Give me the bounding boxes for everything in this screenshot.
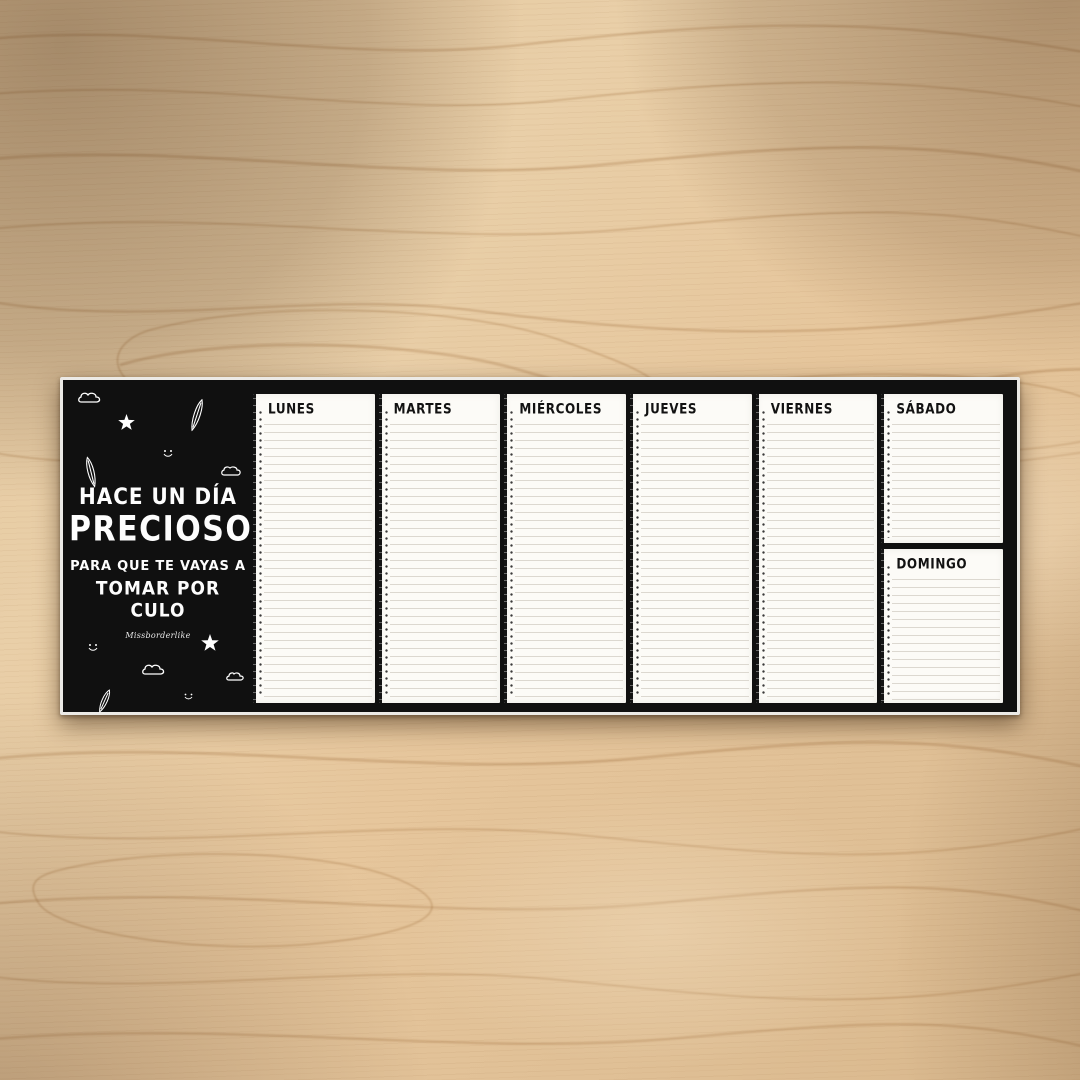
quote-line-2: PRECIOSO <box>69 510 247 549</box>
day-label-jueves: JUEVES <box>645 401 752 417</box>
day-box-lunes: LUNES <box>253 394 375 703</box>
day-label-sabado: SÁBADO <box>896 401 1003 417</box>
star-doodle-icon <box>201 634 219 652</box>
day-label-miercoles: MIÉRCOLES <box>519 401 626 417</box>
smiley-doodle-icon <box>87 642 99 652</box>
cloud-doodle-icon <box>220 464 244 479</box>
day-box-viernes: VIERNES <box>756 394 878 703</box>
day-column-miercoles: MIÉRCOLES <box>504 394 626 703</box>
day-box-martes: MARTES <box>379 394 501 703</box>
wood-desk-background: HACE UN DÍA PRECIOSO PARA QUE TE VAYAS A… <box>0 0 1080 1080</box>
quote-line-4: TOMAR POR CULO <box>69 578 247 622</box>
day-box-jueves: JUEVES <box>630 394 752 703</box>
binding-edge <box>379 394 382 703</box>
day-column-viernes: VIERNES <box>756 394 878 703</box>
day-box-miercoles: MIÉRCOLES <box>504 394 626 703</box>
quote-block: HACE UN DÍA PRECIOSO PARA QUE TE VAYAS A… <box>69 484 247 640</box>
quote-line-1: HACE UN DÍA <box>69 483 247 510</box>
ruled-lines <box>390 417 498 700</box>
day-column-weekend: SÁBADO DOMINGO <box>881 394 1003 703</box>
binding-edge <box>630 394 633 703</box>
perforation-dots-icon <box>887 411 890 538</box>
cloud-doodle-icon <box>77 390 103 406</box>
week-grid: LUNES MARTES MIÉ <box>253 394 1003 703</box>
feather-doodle-icon <box>186 397 208 433</box>
binding-edge <box>881 549 884 703</box>
day-label-viernes: VIERNES <box>771 401 878 417</box>
day-column-jueves: JUEVES <box>630 394 752 703</box>
planner-black-surface: HACE UN DÍA PRECIOSO PARA QUE TE VAYAS A… <box>63 380 1017 712</box>
perforation-dots-icon <box>887 566 890 698</box>
day-label-lunes: LUNES <box>268 401 375 417</box>
perforation-dots-icon <box>636 411 639 698</box>
perforation-dots-icon <box>259 411 262 698</box>
day-box-domingo: DOMINGO <box>881 549 1003 703</box>
smiley-doodle-icon <box>162 448 174 458</box>
ruled-lines <box>641 417 749 700</box>
ruled-lines <box>892 572 1000 700</box>
day-label-domingo: DOMINGO <box>896 556 1003 572</box>
feather-doodle-icon <box>94 687 115 715</box>
ruled-lines <box>515 417 623 700</box>
binding-edge <box>881 394 884 543</box>
quote-line-3: PARA QUE TE VAYAS A <box>69 559 247 575</box>
perforation-dots-icon <box>762 411 765 698</box>
day-box-sabado: SÁBADO <box>881 394 1003 543</box>
day-column-lunes: LUNES <box>253 394 375 703</box>
quote-panel: HACE UN DÍA PRECIOSO PARA QUE TE VAYAS A… <box>63 380 253 712</box>
ruled-lines <box>264 417 372 700</box>
cloud-doodle-icon <box>141 662 167 678</box>
weekly-planner-pad: HACE UN DÍA PRECIOSO PARA QUE TE VAYAS A… <box>60 377 1020 715</box>
perforation-dots-icon <box>385 411 388 698</box>
ruled-lines <box>892 417 1000 540</box>
ruled-lines <box>767 417 875 700</box>
day-label-martes: MARTES <box>394 401 501 417</box>
brand-signature: Missborderlike <box>69 631 247 640</box>
binding-edge <box>504 394 507 703</box>
cloud-doodle-icon <box>225 670 247 684</box>
perforation-dots-icon <box>510 411 513 698</box>
smiley-doodle-icon <box>183 692 194 701</box>
star-doodle-icon <box>118 414 135 431</box>
day-column-martes: MARTES <box>379 394 501 703</box>
binding-edge <box>756 394 759 703</box>
binding-edge <box>253 394 256 703</box>
